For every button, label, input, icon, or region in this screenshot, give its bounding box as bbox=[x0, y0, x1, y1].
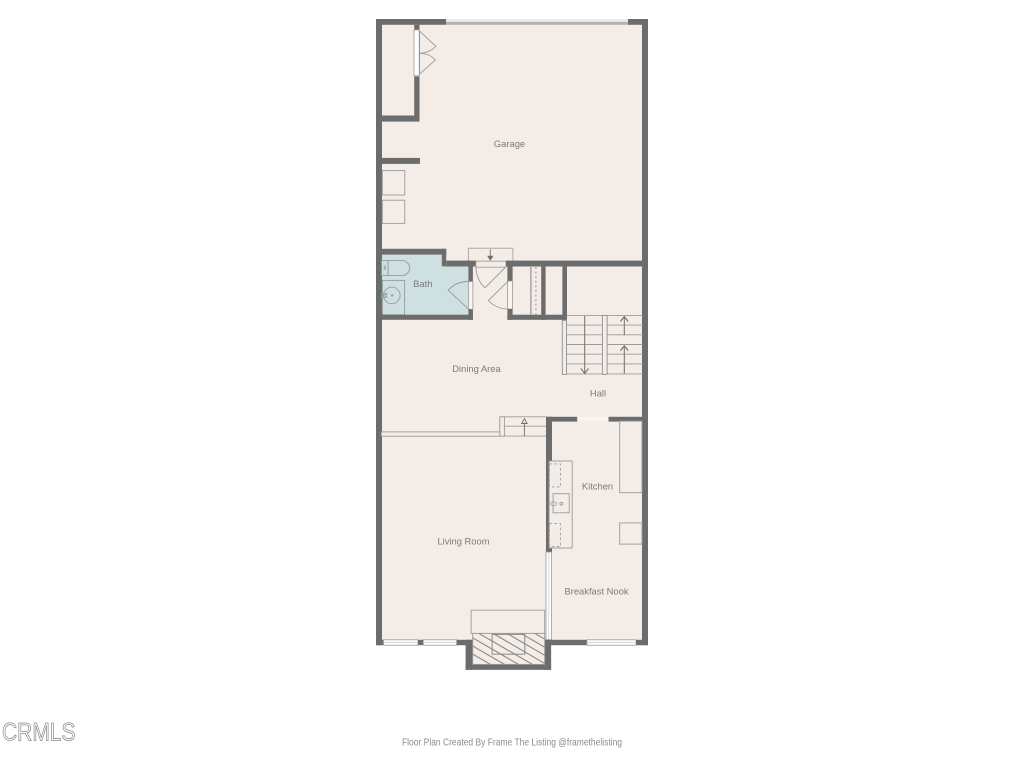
svg-text:Kitchen: Kitchen bbox=[582, 480, 613, 491]
svg-text:Floor Plan Created By Frame Th: Floor Plan Created By Frame The Listing … bbox=[402, 738, 622, 749]
svg-text:Living Room: Living Room bbox=[437, 535, 489, 546]
svg-text:Bath: Bath bbox=[413, 278, 432, 289]
svg-text:Dining Area: Dining Area bbox=[452, 363, 501, 374]
svg-text:Breakfast Nook: Breakfast Nook bbox=[564, 586, 628, 597]
svg-text:Garage: Garage bbox=[494, 138, 525, 149]
svg-text:CRMLS: CRMLS bbox=[2, 718, 75, 746]
svg-text:Hall: Hall bbox=[590, 387, 606, 398]
